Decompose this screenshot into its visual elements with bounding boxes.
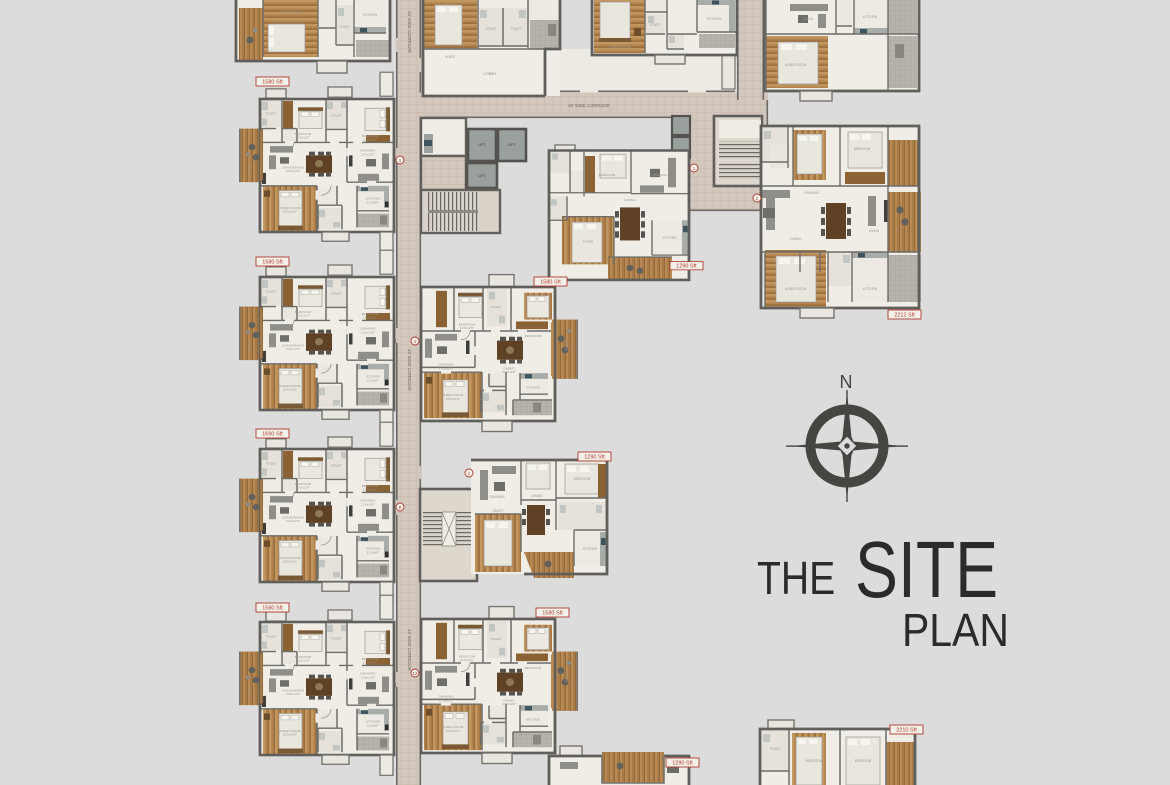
svg-text:1580 Sft: 1580 Sft	[262, 260, 283, 266]
svg-text:M.BED ROOM: M.BED ROOM	[786, 287, 807, 291]
svg-text:TOILET: TOILET	[339, 25, 350, 29]
svg-text:DRAWING: DRAWING	[652, 173, 668, 177]
svg-text:M.BED ROOM: M.BED ROOM	[610, 45, 631, 49]
svg-text:KITCHEN: KITCHEN	[863, 287, 878, 291]
svg-text:1580 Sft: 1580 Sft	[262, 80, 283, 86]
svg-text:DINING: DINING	[790, 237, 802, 241]
svg-text:LIFT: LIFT	[478, 174, 486, 178]
svg-text:TOILET: TOILET	[769, 747, 780, 751]
svg-text:KITCHEN: KITCHEN	[863, 15, 878, 19]
svg-text:BEDROOM: BEDROOM	[854, 147, 871, 151]
svg-text:1580 Sft: 1580 Sft	[542, 611, 563, 617]
svg-text:1290 Sft: 1290 Sft	[584, 455, 605, 461]
svg-text:1290 Sft: 1290 Sft	[676, 264, 697, 270]
svg-text:DINING: DINING	[624, 198, 636, 202]
svg-text:M.BED ROOM: M.BED ROOM	[786, 63, 807, 67]
svg-text:LIVING: LIVING	[869, 229, 880, 233]
svg-text:2212 Sft: 2212 Sft	[894, 313, 915, 319]
svg-text:1580 Sft: 1580 Sft	[262, 606, 283, 612]
svg-text:LOBBY: LOBBY	[483, 71, 497, 76]
svg-text:N: N	[840, 372, 853, 392]
svg-text:BEDROOM: BEDROOM	[599, 173, 616, 177]
svg-text:1290 Sft: 1290 Sft	[672, 761, 693, 767]
svg-text:M.BED: M.BED	[583, 239, 594, 243]
svg-text:40' WIDE CORRIDOR: 40' WIDE CORRIDOR	[407, 11, 412, 53]
svg-text:THE: THE	[757, 553, 835, 605]
svg-text:LIFT: LIFT	[478, 143, 486, 147]
svg-text:1690 Sft: 1690 Sft	[262, 432, 283, 438]
svg-text:45' WIDE CORRIDOR: 45' WIDE CORRIDOR	[568, 103, 610, 108]
svg-text:DRAWING: DRAWING	[489, 495, 505, 499]
svg-text:45' WIDE CORRIDOR: 45' WIDE CORRIDOR	[407, 629, 412, 671]
svg-text:DRAWING: DRAWING	[804, 191, 820, 195]
svg-text:1580 Sft: 1580 Sft	[540, 280, 561, 286]
svg-text:PLAN: PLAN	[902, 606, 1009, 657]
svg-text:12: 12	[412, 671, 418, 676]
svg-text:TOILET: TOILET	[649, 23, 660, 27]
svg-text:TOILET: TOILET	[510, 27, 521, 31]
svg-text:KITCHEN: KITCHEN	[363, 13, 378, 17]
svg-text:KITCHEN: KITCHEN	[707, 17, 722, 21]
svg-text:LIVING: LIVING	[803, 17, 814, 21]
svg-text:2210 Sft: 2210 Sft	[896, 728, 917, 734]
svg-text:KITCHEN: KITCHEN	[583, 547, 598, 551]
svg-text:DINING: DINING	[531, 494, 543, 498]
svg-text:LIFT: LIFT	[508, 143, 516, 147]
svg-text:BEDROOM: BEDROOM	[574, 477, 591, 481]
svg-text:40' WIDE CORRIDOR: 40' WIDE CORRIDOR	[407, 349, 412, 391]
svg-text:M.BED: M.BED	[445, 55, 456, 59]
svg-text:TOILET: TOILET	[485, 27, 496, 31]
svg-text:KITCHEN: KITCHEN	[663, 236, 677, 240]
svg-text:BEDROOM: BEDROOM	[806, 759, 823, 763]
svg-text:M.BED ROOM: M.BED ROOM	[280, 11, 301, 15]
svg-text:BEDROOM: BEDROOM	[855, 759, 872, 763]
svg-text:GUEST: GUEST	[493, 509, 504, 513]
svg-text:SITE: SITE	[855, 525, 998, 614]
